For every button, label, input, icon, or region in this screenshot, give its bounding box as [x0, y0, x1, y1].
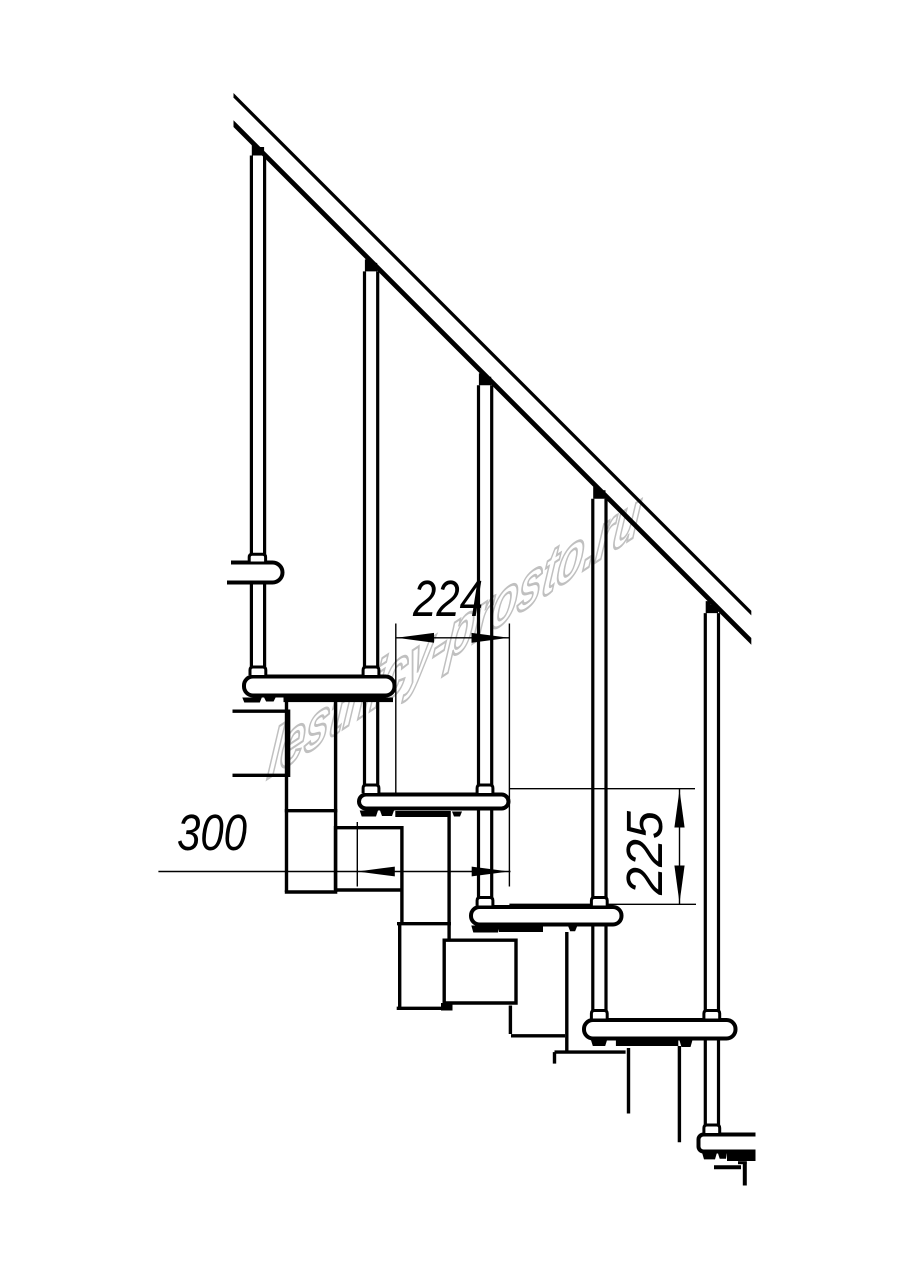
- svg-text:300: 300: [177, 804, 247, 861]
- svg-text:lestnicy-prosto.ru: lestnicy-prosto.ru: [264, 473, 646, 795]
- svg-text:225: 225: [616, 810, 673, 896]
- svg-text:224: 224: [412, 570, 483, 627]
